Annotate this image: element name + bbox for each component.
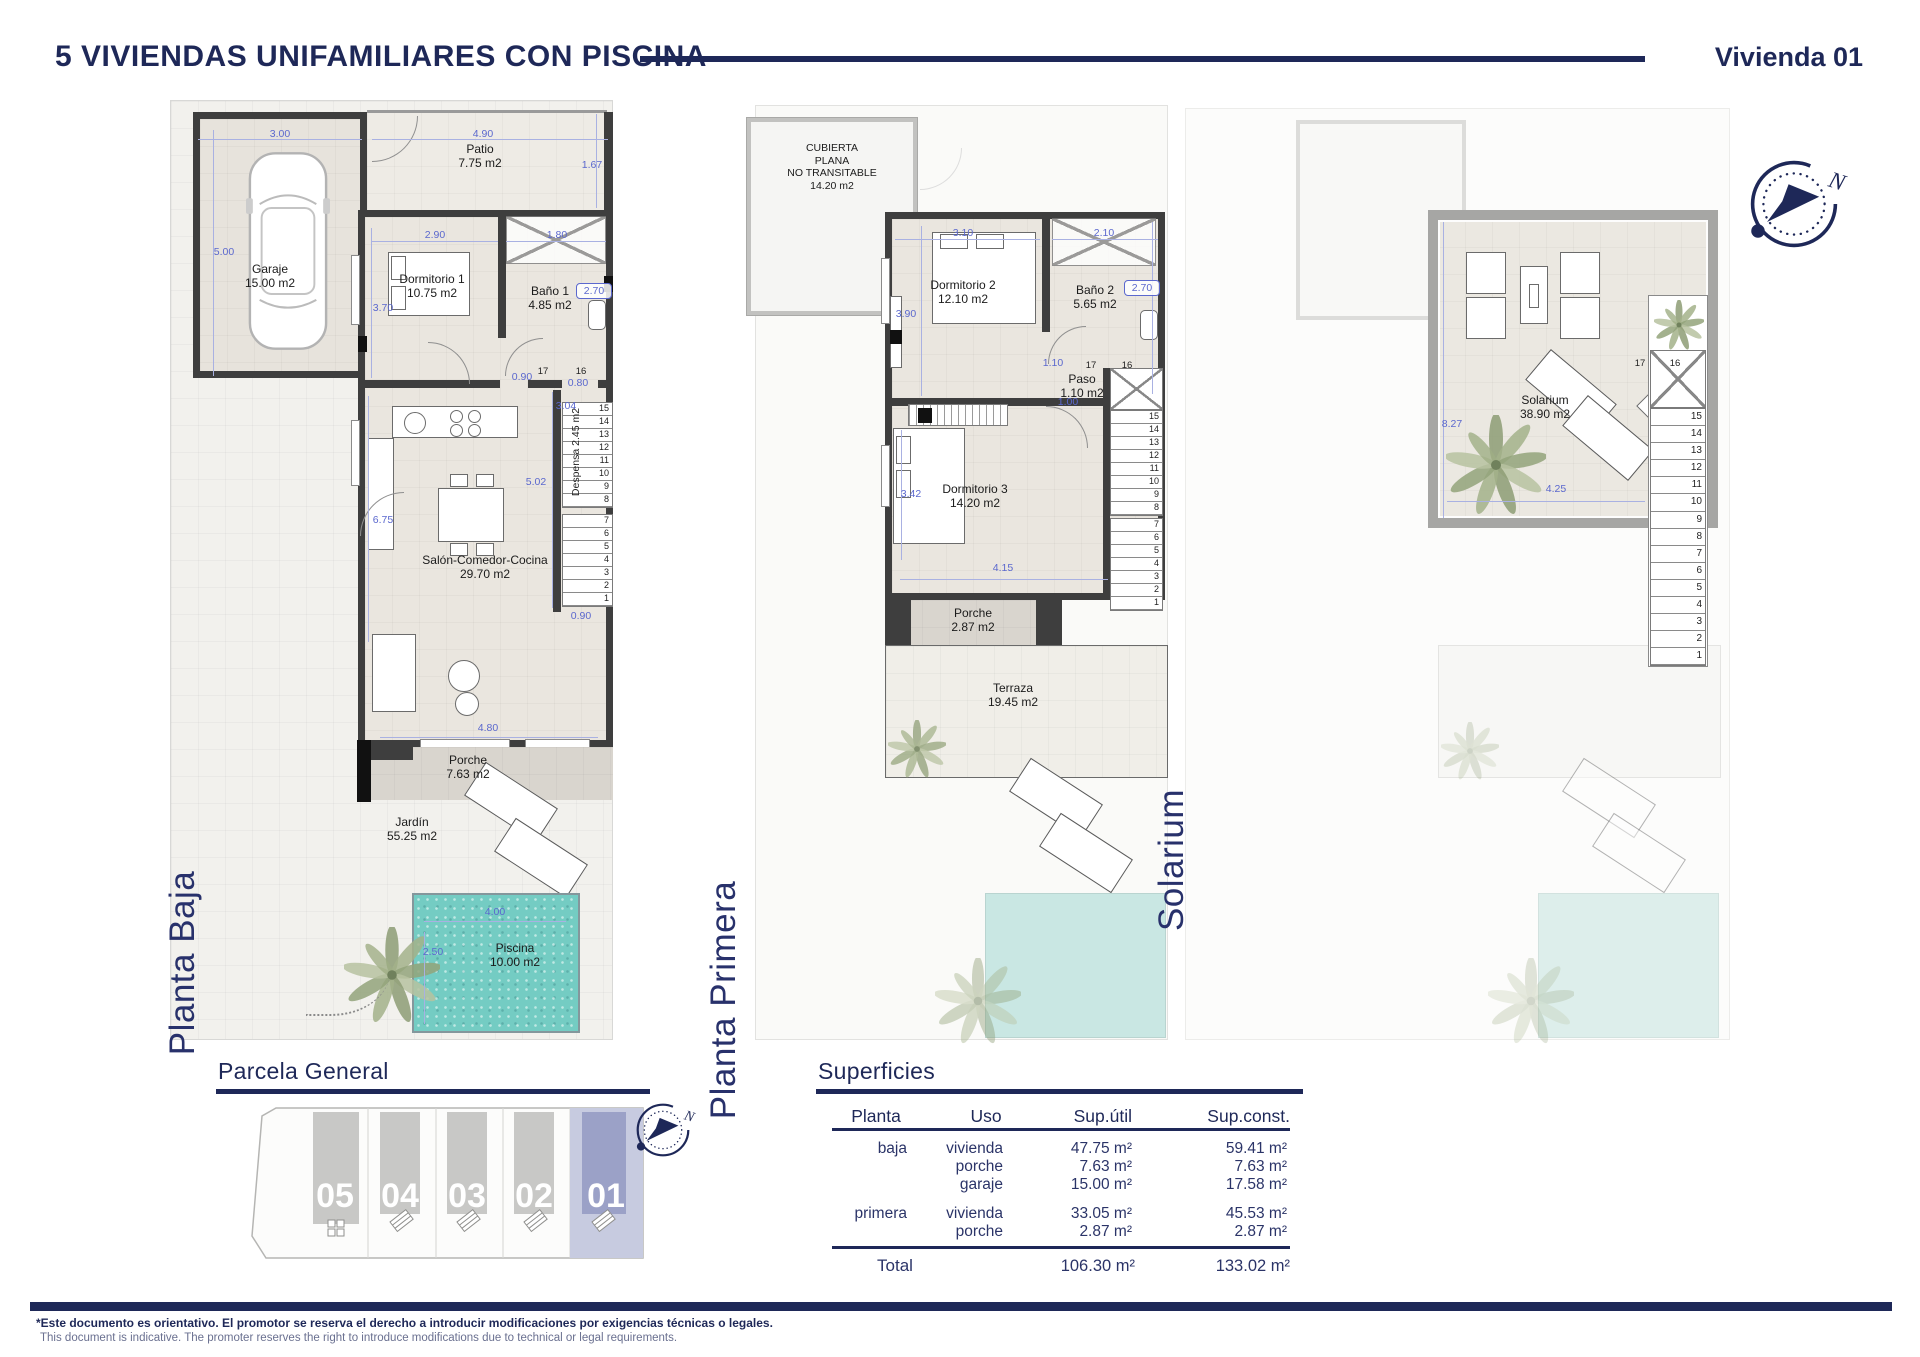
cubierta-line: NO TRANSITABLE xyxy=(762,167,902,180)
palm-tree-icon xyxy=(1441,722,1499,780)
room-area: 15.00 m2 xyxy=(200,276,340,290)
palm-tree-icon xyxy=(935,958,1021,1044)
dimension-line xyxy=(1152,222,1153,394)
table-cell-uso: vivienda xyxy=(891,1205,1003,1223)
dimension-label: 0.90 xyxy=(500,371,544,383)
room-name: Garaje xyxy=(200,262,340,276)
room-name: Dormitorio 1 xyxy=(362,272,502,286)
room-name: Piscina xyxy=(445,941,585,955)
total-sup-util: 106.30 m² xyxy=(1015,1257,1135,1276)
plot-number-02: 02 xyxy=(515,1177,553,1215)
dining-table xyxy=(438,488,504,542)
dimension-line xyxy=(380,737,598,738)
table-cell-const: 59.41 m² xyxy=(1157,1140,1287,1158)
dimension-label: 1.67 xyxy=(570,159,614,171)
parcela-rule xyxy=(216,1089,650,1094)
plan-title-planta-primera: Planta Primera xyxy=(704,881,744,1119)
dimension-line xyxy=(506,241,606,242)
room-name: Salón-Comedor-Cocina xyxy=(395,553,575,567)
room-area: 38.90 m2 xyxy=(1475,407,1615,421)
sofa xyxy=(372,634,416,712)
closet-handle xyxy=(890,330,902,344)
stair-step-number: 16 xyxy=(566,366,596,377)
room-label-dormitorio-1: Dormitorio 1 10.75 m2 xyxy=(362,272,502,301)
room-name: Paso xyxy=(1022,372,1142,386)
table-cell-const: 17.58 m² xyxy=(1157,1176,1287,1194)
wall xyxy=(1103,368,1110,594)
side-table xyxy=(448,660,480,692)
palm-tree-icon xyxy=(1654,300,1704,350)
patio-fence xyxy=(367,110,607,113)
room-area: 10.00 m2 xyxy=(445,955,585,969)
shower xyxy=(1052,218,1156,266)
dimension-label: 2.70 xyxy=(1124,280,1160,296)
room-label-solarium: Solarium 38.90 m2 xyxy=(1475,393,1615,422)
staircase: 151413121110987654321 xyxy=(1650,408,1706,666)
wall xyxy=(1042,212,1050,332)
plot-number-04: 04 xyxy=(381,1177,419,1215)
dimension-label: 2.70 xyxy=(576,283,612,299)
table-cell-const: 45.53 m² xyxy=(1157,1205,1287,1223)
room-area: 19.45 m2 xyxy=(943,695,1083,709)
cubierta-label: CUBIERTA PLANA NO TRANSITABLE 14.20 m2 xyxy=(762,142,902,192)
staircase: 15141312111098 xyxy=(1110,410,1163,516)
kitchen-sink xyxy=(404,412,426,434)
superficies-rule xyxy=(816,1089,1303,1094)
total-sup-const: 133.02 m² xyxy=(1160,1257,1290,1276)
table-cell-util: 47.75 m² xyxy=(1020,1140,1132,1158)
table-cell-uso: garaje xyxy=(891,1176,1003,1194)
side-table xyxy=(455,692,479,716)
dimension-label: 1.10 xyxy=(1031,357,1075,369)
dimension-line xyxy=(1443,222,1444,518)
stove-burner xyxy=(468,410,481,423)
stair-step-number: 16 xyxy=(1112,360,1142,371)
stove-burner xyxy=(450,410,463,423)
dimension-line xyxy=(424,921,566,922)
room-name: Terraza xyxy=(943,681,1083,695)
room-label-piscina: Piscina 10.00 m2 xyxy=(445,941,585,970)
table-cell-util: 2.87 m² xyxy=(1020,1223,1132,1241)
superficies-title: Superficies xyxy=(818,1058,935,1085)
room-name: Patio xyxy=(410,142,550,156)
chair xyxy=(1560,297,1600,339)
chair xyxy=(476,474,494,487)
car-icon xyxy=(246,146,330,356)
room-area: 10.75 m2 xyxy=(362,286,502,300)
footer-bar xyxy=(30,1302,1892,1311)
table-cell-util: 15.00 m² xyxy=(1020,1176,1132,1194)
dimension-label: 4.90 xyxy=(461,128,505,140)
door-jamb xyxy=(358,336,367,352)
wall xyxy=(598,380,613,388)
room-label-dormitorio-2: Dormitorio 2 12.10 m2 xyxy=(893,278,1033,307)
plan-title-planta-baja: Planta Baja xyxy=(163,871,203,1056)
room-label-salon: Salón-Comedor-Cocina 29.70 m2 xyxy=(395,553,575,582)
room-label-despensa: Despensa 2.45 m2 xyxy=(570,408,582,496)
dimension-label: 0.80 xyxy=(556,377,600,389)
col-header-planta: Planta xyxy=(820,1106,932,1127)
north-compass-icon xyxy=(630,1097,696,1163)
dimension-line xyxy=(895,239,1040,240)
toilet xyxy=(1140,310,1158,340)
room-area: 55.25 m2 xyxy=(342,829,482,843)
table-cell-uso: porche xyxy=(891,1158,1003,1176)
table-rule xyxy=(832,1128,1290,1131)
room-area: 4.85 m2 xyxy=(495,298,605,312)
dimension-label: 8.27 xyxy=(1430,418,1474,430)
room-name: Porche xyxy=(903,606,1043,620)
dimension-label: 2.10 xyxy=(1082,227,1126,239)
dimension-label: 4.15 xyxy=(981,562,1025,574)
plot-number-03: 03 xyxy=(448,1177,486,1215)
stair-step-number: 17 xyxy=(1076,360,1106,371)
table-cell-uso: porche xyxy=(891,1223,1003,1241)
room-name: Dormitorio 2 xyxy=(893,278,1033,292)
table-slot xyxy=(1529,284,1539,308)
stove-burner xyxy=(468,424,481,437)
room-label-jardin: Jardín 55.25 m2 xyxy=(342,815,482,844)
room-label-porche: Porche 7.63 m2 xyxy=(398,753,538,782)
plot-number-01: 01 xyxy=(587,1177,625,1215)
table-cell-const: 2.87 m² xyxy=(1157,1223,1287,1241)
dimension-label: 4.00 xyxy=(473,906,517,918)
room-area: 12.10 m2 xyxy=(893,292,1033,306)
window xyxy=(351,255,360,325)
palm-tree-icon xyxy=(1488,958,1574,1044)
unit-title: Vivienda 01 xyxy=(1663,42,1863,73)
staircase: 7654321 xyxy=(1110,518,1163,611)
room-name: Despensa xyxy=(570,449,582,496)
dimension-label: 3.70 xyxy=(361,302,405,314)
dimension-line xyxy=(372,241,498,242)
room-area: 2.87 m2 xyxy=(903,620,1043,634)
parcela-title: Parcela General xyxy=(218,1058,389,1085)
palm-tree-icon xyxy=(1446,415,1546,515)
dimension-label: 0.90 xyxy=(559,610,603,622)
room-label-terraza: Terraza 19.45 m2 xyxy=(943,681,1083,710)
dimension-label: 4.25 xyxy=(1534,483,1578,495)
stove-burner xyxy=(450,424,463,437)
plan-sheet: 5 VIVIENDAS UNIFAMILIARES CON PISCINA Vi… xyxy=(0,0,1920,1357)
disclaimer-en: This document is indicative. The promote… xyxy=(40,1332,677,1344)
window xyxy=(351,420,360,486)
table-cell-util: 33.05 m² xyxy=(1020,1205,1132,1223)
dimension-label: 2.90 xyxy=(413,229,457,241)
chair xyxy=(450,474,468,487)
dimension-line xyxy=(900,579,1108,580)
dimension-label: 3.10 xyxy=(941,227,985,239)
table-cell-uso: vivienda xyxy=(891,1140,1003,1158)
dimension-label: 3.42 xyxy=(889,488,933,500)
room-area: 7.75 m2 xyxy=(410,156,550,170)
dimension-label: 5.02 xyxy=(514,476,558,488)
closet-handle xyxy=(918,408,932,423)
plan-title-solarium: Solarium xyxy=(1152,789,1192,931)
pillow xyxy=(896,436,911,464)
col-header-sup-const: Sup.const. xyxy=(1160,1106,1290,1127)
stair-step-number: 17 xyxy=(1625,358,1655,369)
room-area: 29.70 m2 xyxy=(395,567,575,581)
chair xyxy=(1466,297,1506,339)
chair xyxy=(1466,252,1506,294)
disclaimer-es: *Este documento es orientativo. El promo… xyxy=(36,1316,773,1330)
dimension-line xyxy=(552,392,553,608)
dimension-label: 6.75 xyxy=(361,514,405,526)
dimension-label: 5.00 xyxy=(202,246,246,258)
dimension-line xyxy=(1052,239,1158,240)
room-area: 2.45 m2 xyxy=(570,408,582,446)
dimension-label: 4.80 xyxy=(466,722,510,734)
dimension-label: 2.50 xyxy=(411,946,455,958)
room-label-garaje: Garaje 15.00 m2 xyxy=(200,262,340,291)
cubierta-line: PLANA xyxy=(762,155,902,168)
dimension-label: 3.04 xyxy=(544,400,588,412)
wall xyxy=(357,740,371,802)
room-area: 5.65 m2 xyxy=(1040,297,1150,311)
table-cell-util: 7.63 m² xyxy=(1020,1158,1132,1176)
total-label: Total xyxy=(845,1256,945,1276)
plot-number-05: 05 xyxy=(316,1177,354,1215)
room-area: 7.63 m2 xyxy=(398,767,538,781)
dimension-label: 3.90 xyxy=(884,308,928,320)
dimension-label: 1.80 xyxy=(535,229,579,241)
room-name: Porche xyxy=(398,753,538,767)
table-rule xyxy=(832,1246,1290,1249)
room-label-porche: Porche 2.87 m2 xyxy=(903,606,1043,635)
table-cell-const: 7.63 m² xyxy=(1157,1158,1287,1176)
cubierta-line: CUBIERTA xyxy=(762,142,902,155)
title-rule xyxy=(640,56,1645,62)
chair xyxy=(1560,252,1600,294)
room-name: Solarium xyxy=(1475,393,1615,407)
col-header-sup-util: Sup.útil xyxy=(1020,1106,1132,1127)
dimension-label: 3.00 xyxy=(258,128,302,140)
cubierta-line: 14.20 m2 xyxy=(762,180,902,193)
stair-step-number: 16 xyxy=(1660,358,1690,369)
room-name: Jardín xyxy=(342,815,482,829)
dimension-line xyxy=(1447,501,1645,502)
north-compass-icon xyxy=(1740,150,1848,258)
room-label-patio: Patio 7.75 m2 xyxy=(410,142,550,171)
site-plan: 05 04 03 02 01 xyxy=(240,1104,645,1262)
page-title: 5 VIVIENDAS UNIFAMILIARES CON PISCINA xyxy=(55,40,707,74)
palm-tree-icon xyxy=(888,720,946,778)
dimension-label: 1.00 xyxy=(1046,396,1090,408)
